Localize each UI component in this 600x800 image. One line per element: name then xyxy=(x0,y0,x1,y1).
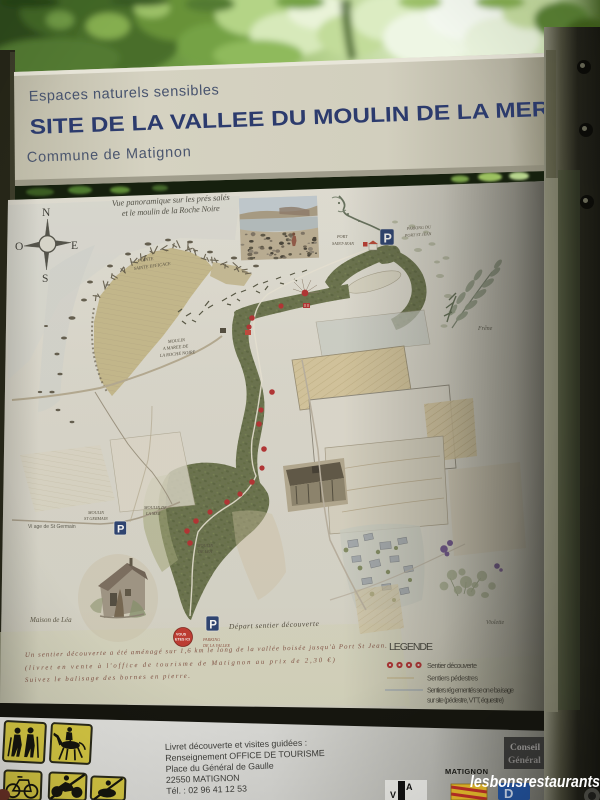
svg-text:lesbonsrestaurants: lesbonsrestaurants xyxy=(470,772,600,791)
